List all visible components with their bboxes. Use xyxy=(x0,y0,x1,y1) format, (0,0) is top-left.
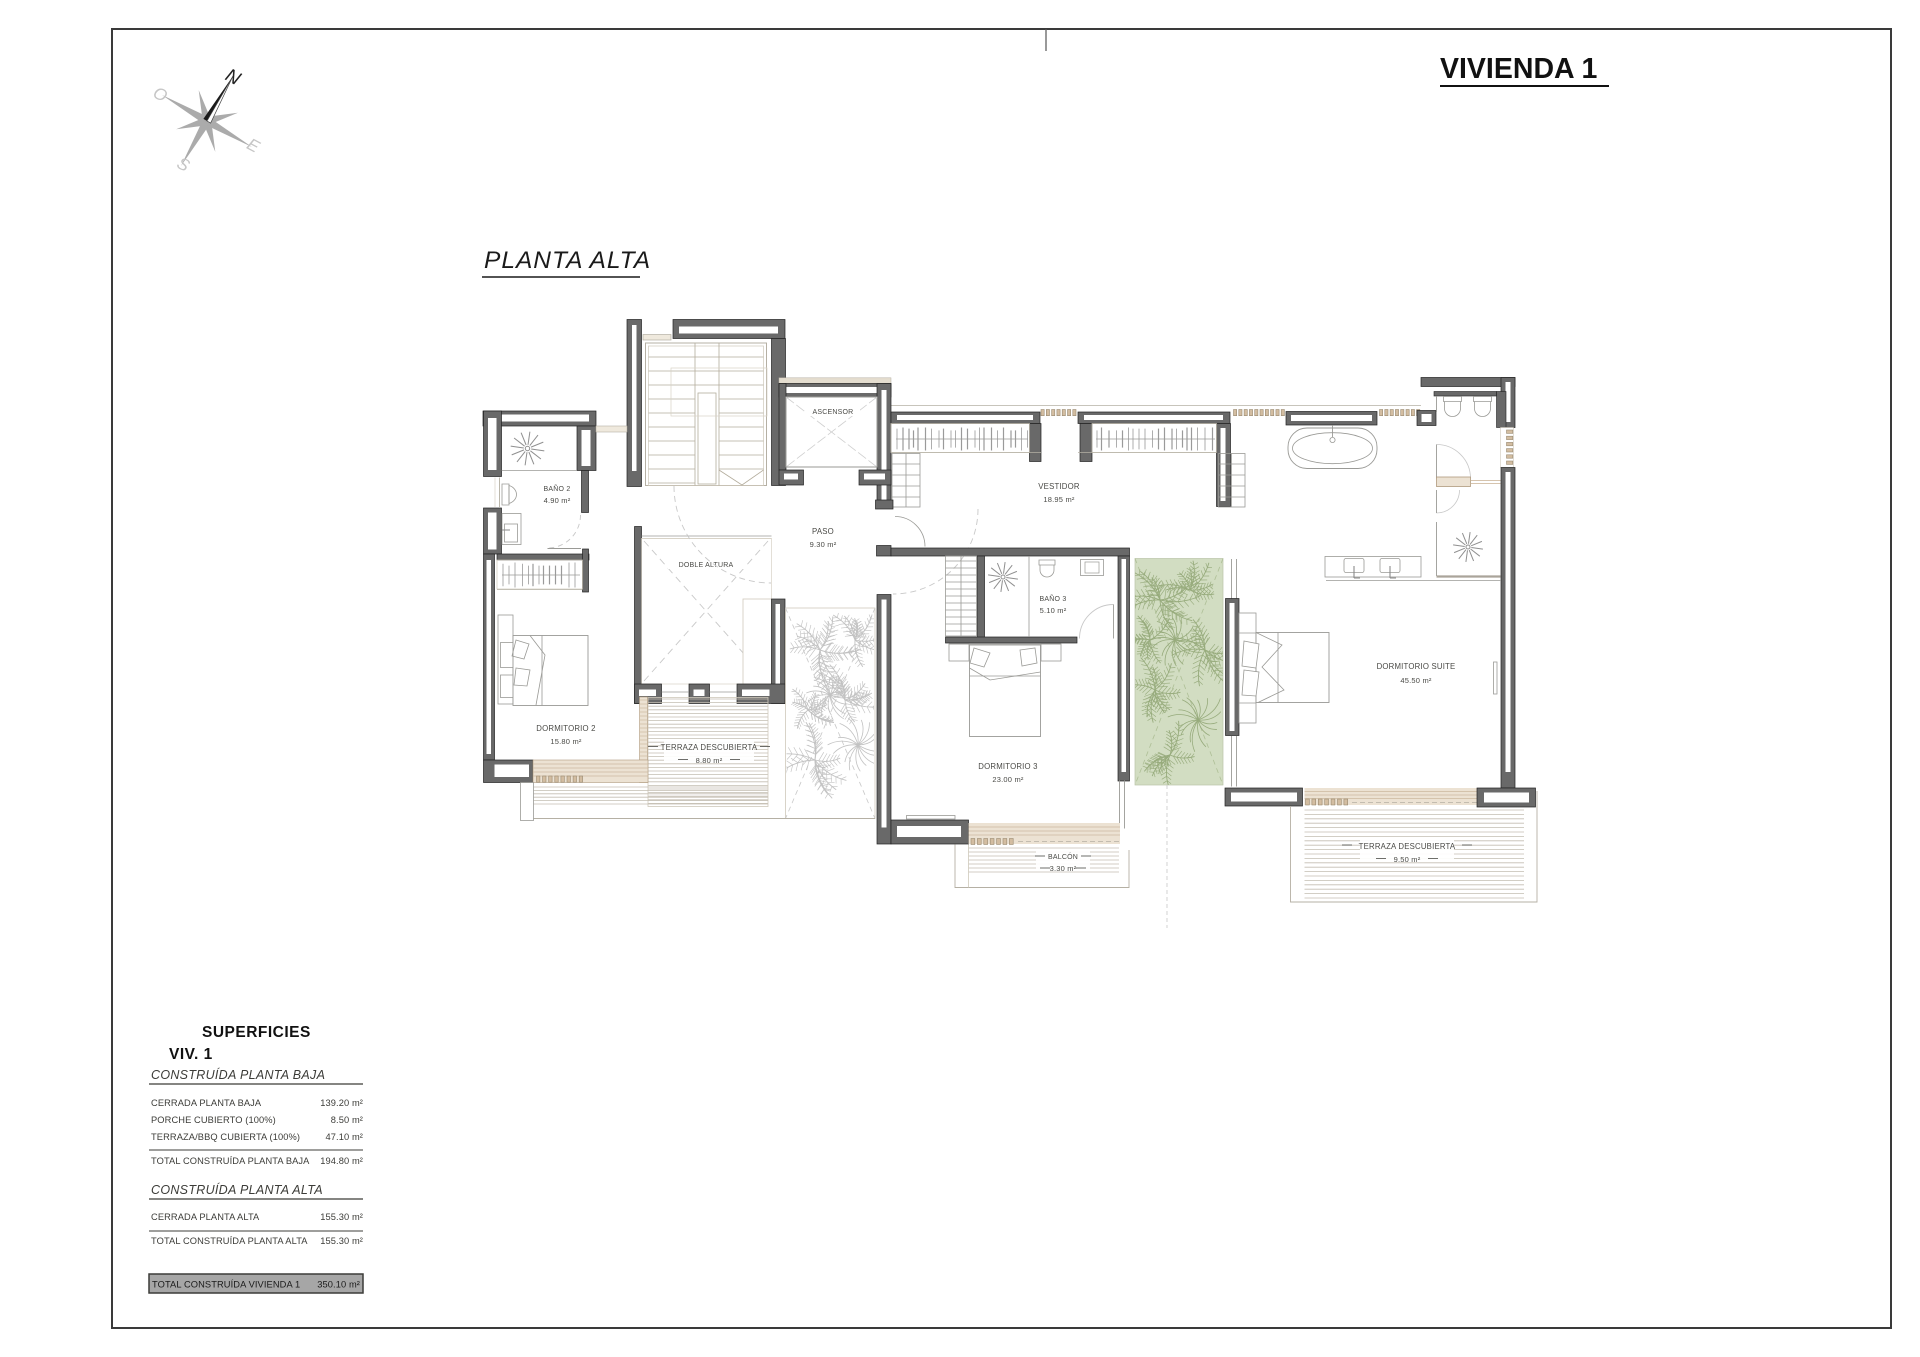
svg-text:8.50 m²: 8.50 m² xyxy=(331,1115,363,1125)
svg-text:DORMITORIO 2: DORMITORIO 2 xyxy=(536,724,595,733)
svg-text:CERRADA PLANTA ALTA: CERRADA PLANTA ALTA xyxy=(151,1212,260,1222)
svg-text:TERRAZA/BBQ CUBIERTA (100%): TERRAZA/BBQ CUBIERTA (100%) xyxy=(151,1132,300,1142)
svg-text:BAÑO 2: BAÑO 2 xyxy=(544,484,571,493)
svg-text:4.90 m²: 4.90 m² xyxy=(544,496,571,505)
svg-text:15.80 m²: 15.80 m² xyxy=(550,737,581,746)
svg-text:TERRAZA DESCUBIERTA: TERRAZA DESCUBIERTA xyxy=(661,743,758,752)
svg-text:47.10 m²: 47.10 m² xyxy=(326,1132,364,1142)
svg-text:CONSTRUÍDA PLANTA BAJA: CONSTRUÍDA PLANTA BAJA xyxy=(151,1067,325,1082)
svg-text:DORMITORIO 3: DORMITORIO 3 xyxy=(978,762,1037,771)
svg-text:PASO: PASO xyxy=(812,527,834,536)
svg-text:8.80 m²: 8.80 m² xyxy=(696,756,723,765)
svg-text:194.80 m²: 194.80 m² xyxy=(320,1156,363,1166)
svg-text:350.10 m²: 350.10 m² xyxy=(317,1280,360,1290)
svg-text:9.50 m²: 9.50 m² xyxy=(1394,855,1421,864)
svg-text:45.50 m²: 45.50 m² xyxy=(1400,676,1431,685)
svg-text:TOTAL CONSTRUÍDA PLANTA ALTA: TOTAL CONSTRUÍDA PLANTA ALTA xyxy=(151,1236,308,1246)
svg-text:TOTAL CONSTRUÍDA VIVIENDA 1: TOTAL CONSTRUÍDA VIVIENDA 1 xyxy=(152,1280,300,1290)
svg-text:TOTAL CONSTRUÍDA PLANTA BAJA: TOTAL CONSTRUÍDA PLANTA BAJA xyxy=(151,1156,310,1166)
svg-text:PORCHE CUBIERTO (100%): PORCHE CUBIERTO (100%) xyxy=(151,1115,276,1125)
svg-text:3.30 m²: 3.30 m² xyxy=(1050,864,1077,873)
svg-text:TERRAZA DESCUBIERTA: TERRAZA DESCUBIERTA xyxy=(1359,842,1456,851)
svg-text:SUPERFICIES: SUPERFICIES xyxy=(202,1024,311,1041)
svg-text:155.30 m²: 155.30 m² xyxy=(320,1212,363,1222)
svg-text:155.30 m²: 155.30 m² xyxy=(320,1236,363,1246)
svg-text:BALCÓN: BALCÓN xyxy=(1048,852,1078,861)
svg-text:CONSTRUÍDA PLANTA ALTA: CONSTRUÍDA PLANTA ALTA xyxy=(151,1182,323,1197)
svg-text:PLANTA ALTA: PLANTA ALTA xyxy=(484,247,651,274)
svg-text:139.20 m²: 139.20 m² xyxy=(320,1098,363,1108)
svg-text:DORMITORIO SUITE: DORMITORIO SUITE xyxy=(1377,662,1456,671)
svg-text:23.00 m²: 23.00 m² xyxy=(992,775,1023,784)
svg-text:5.10 m²: 5.10 m² xyxy=(1040,606,1067,615)
svg-text:VIV. 1: VIV. 1 xyxy=(169,1046,213,1063)
svg-text:BAÑO 3: BAÑO 3 xyxy=(1040,594,1067,603)
svg-text:CERRADA PLANTA BAJA: CERRADA PLANTA BAJA xyxy=(151,1098,262,1108)
svg-text:9.30 m²: 9.30 m² xyxy=(810,540,837,549)
svg-text:VESTIDOR: VESTIDOR xyxy=(1038,482,1080,491)
svg-text:DOBLE ALTURA: DOBLE ALTURA xyxy=(679,562,734,569)
svg-text:VIVIENDA 1: VIVIENDA 1 xyxy=(1440,53,1597,85)
svg-text:18.95 m²: 18.95 m² xyxy=(1043,495,1074,504)
svg-text:ASCENSOR: ASCENSOR xyxy=(813,409,854,416)
